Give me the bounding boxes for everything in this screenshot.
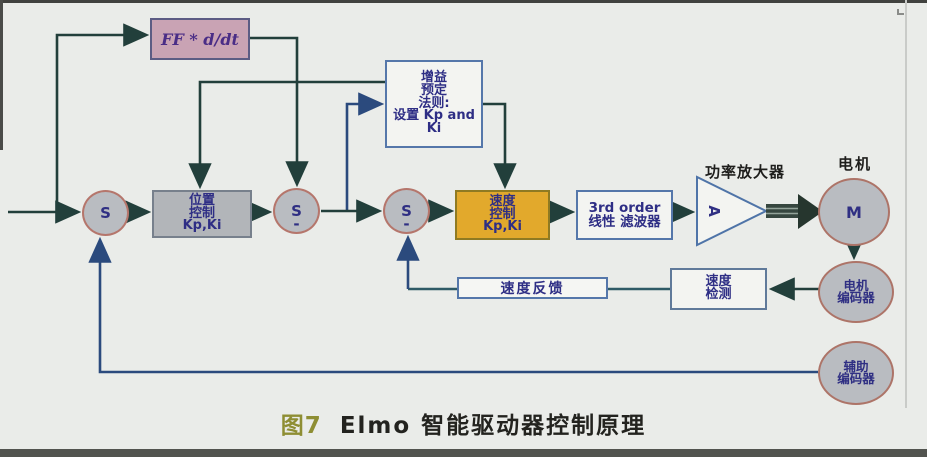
figure-number: 图7	[281, 406, 322, 440]
motor-encoder-circle: 电机 编码器	[818, 261, 894, 323]
wire-branch-to-gain	[347, 104, 379, 211]
speed-control-block: 速度 控制 Kp,Ki	[455, 190, 550, 240]
aux-encoder-circle: 辅助 编码器	[818, 341, 894, 405]
amplifier-title: 功率放大器	[705, 161, 785, 182]
motor-title: 电机	[838, 153, 872, 174]
feedforward-block: FF * d/dt	[150, 18, 250, 60]
motor-letter: M	[846, 203, 862, 222]
filter-label: 3rd order 线性 滤波器	[588, 201, 660, 229]
scan-edge-right	[905, 0, 907, 408]
gain-schedule-label: 增益 预定 法则: 设置 Kp and Ki	[393, 72, 475, 136]
scan-mark-top-right	[897, 9, 904, 15]
feedforward-label: FF * d/dt	[161, 30, 239, 49]
scan-edge-left	[0, 0, 3, 150]
position-control-label: 位置 控制 Kp,Ki	[183, 195, 222, 232]
summing-junction-3: S -	[383, 188, 430, 234]
wire-input-to-feedforward	[57, 35, 144, 212]
speed-detect-block: 速度 检测	[670, 268, 767, 310]
motor-encoder-label: 电机 编码器	[837, 280, 875, 305]
scan-edge-bottom	[0, 449, 927, 457]
sum2-minus-sign: -	[293, 217, 299, 232]
sum1-label: S	[100, 204, 111, 222]
speed-control-label: 速度 控制 Kp,Ki	[483, 196, 522, 233]
speed-feedback-label: 速度反馈	[501, 278, 565, 298]
summing-junction-2: S -	[273, 188, 320, 234]
wire-gain-to-speed	[483, 104, 505, 184]
figure-canvas: FF * d/dt 增益 预定 法则: 设置 Kp and Ki 位置 控制 K…	[0, 0, 927, 457]
gain-schedule-block: 增益 预定 法则: 设置 Kp and Ki	[385, 60, 483, 148]
speed-detect-label: 速度 检测	[705, 276, 731, 301]
sum3-minus-sign: -	[403, 217, 409, 232]
wire-feedforward-to-sum2	[250, 38, 297, 182]
speed-feedback-bar: 速度反馈	[457, 277, 608, 299]
motor-circle: M	[818, 178, 890, 246]
thick-arrow-amp-to-motor	[766, 194, 823, 229]
filter-block: 3rd order 线性 滤波器	[576, 190, 673, 240]
position-control-block: 位置 控制 Kp,Ki	[152, 190, 252, 238]
scan-edge-top	[0, 0, 927, 3]
figure-title: Elmo 智能驱动器控制原理	[340, 406, 646, 440]
summing-junction-1: S	[82, 190, 129, 236]
wire-gain-to-position	[200, 82, 385, 184]
aux-encoder-label: 辅助 编码器	[837, 361, 875, 386]
figure-caption: 图7 Elmo 智能驱动器控制原理	[0, 406, 927, 440]
amplifier-letter: A	[703, 198, 725, 224]
